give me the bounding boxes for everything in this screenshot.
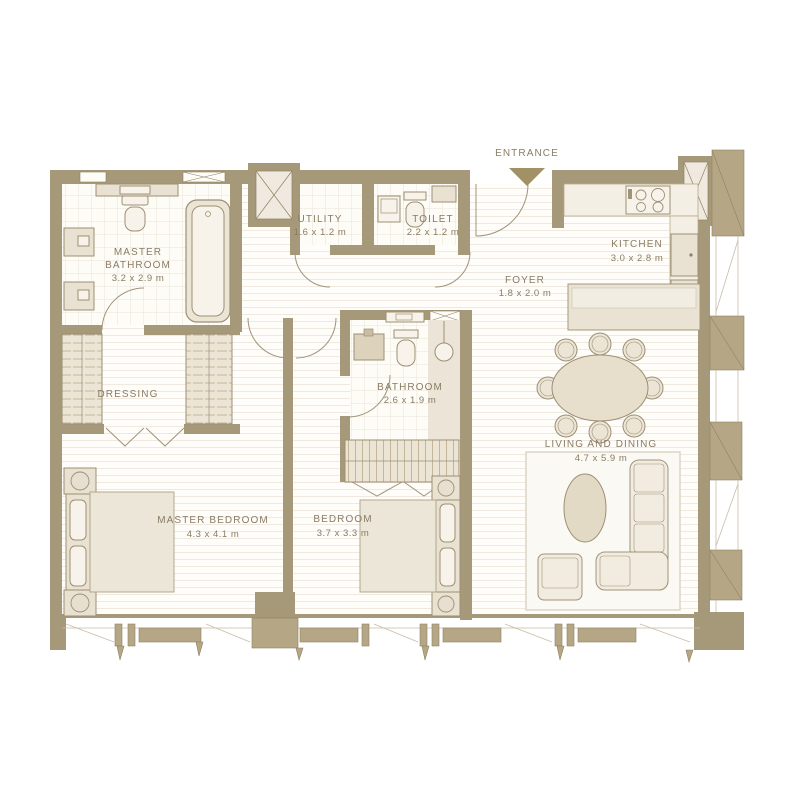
right-facade	[710, 150, 744, 612]
room-label: MASTER	[114, 247, 162, 258]
bed-icon	[360, 500, 460, 592]
armchair-icon	[538, 554, 582, 600]
nightstand-icon	[64, 468, 96, 494]
room-label: BATHROOM	[377, 382, 443, 393]
room-label: KITCHEN	[611, 239, 663, 250]
bottom-facade	[62, 618, 700, 662]
nightstand-icon	[432, 476, 460, 500]
bed-icon	[66, 492, 174, 592]
room-label: BEDROOM	[313, 514, 372, 525]
mirror-icon	[120, 186, 150, 194]
washbasin-icon	[378, 196, 400, 222]
toilet-icon	[122, 196, 148, 231]
room-label: DRESSING	[97, 389, 158, 400]
room-label: BATHROOM	[105, 260, 171, 271]
nightstand-icon	[64, 590, 96, 616]
room-dims: 2.2 x 1.2 m	[407, 227, 460, 238]
entrance-arrow-icon	[509, 168, 545, 186]
floor-plan: ENTRANCE MASTER BATHROOM 3.2 x 2.9 m UTI…	[0, 0, 800, 800]
kitchen-island-icon	[568, 284, 700, 330]
room-dims: 4.3 x 4.1 m	[187, 529, 240, 540]
nightstand-icon	[432, 592, 460, 616]
mirror-icon	[386, 312, 424, 322]
coffee-table-icon	[564, 474, 606, 542]
shelf-icon	[432, 186, 456, 202]
room-dims: 3.2 x 2.9 m	[112, 273, 165, 284]
stove-icon	[626, 186, 670, 214]
room-dims: 2.6 x 1.9 m	[384, 395, 437, 406]
room-dims: 1.8 x 2.0 m	[499, 288, 552, 299]
entrance-label: ENTRANCE	[495, 148, 559, 159]
room-dims: 3.0 x 2.8 m	[611, 253, 664, 264]
room-dims: 3.7 x 3.3 m	[317, 528, 370, 539]
dining-set-icon	[537, 333, 663, 443]
room-dims: 4.7 x 5.9 m	[575, 453, 628, 464]
sink-icon	[354, 329, 384, 360]
bathtub-icon	[186, 200, 230, 322]
room-label: TOILET	[412, 214, 453, 225]
room-label: LIVING AND DINING	[545, 439, 658, 450]
room-label: MASTER BEDROOM	[157, 515, 269, 526]
room-dims: 1.6 x 1.2 m	[294, 227, 347, 238]
room-label: FOYER	[505, 275, 545, 286]
room-label: UTILITY	[298, 214, 343, 225]
toilet-icon	[394, 330, 418, 366]
